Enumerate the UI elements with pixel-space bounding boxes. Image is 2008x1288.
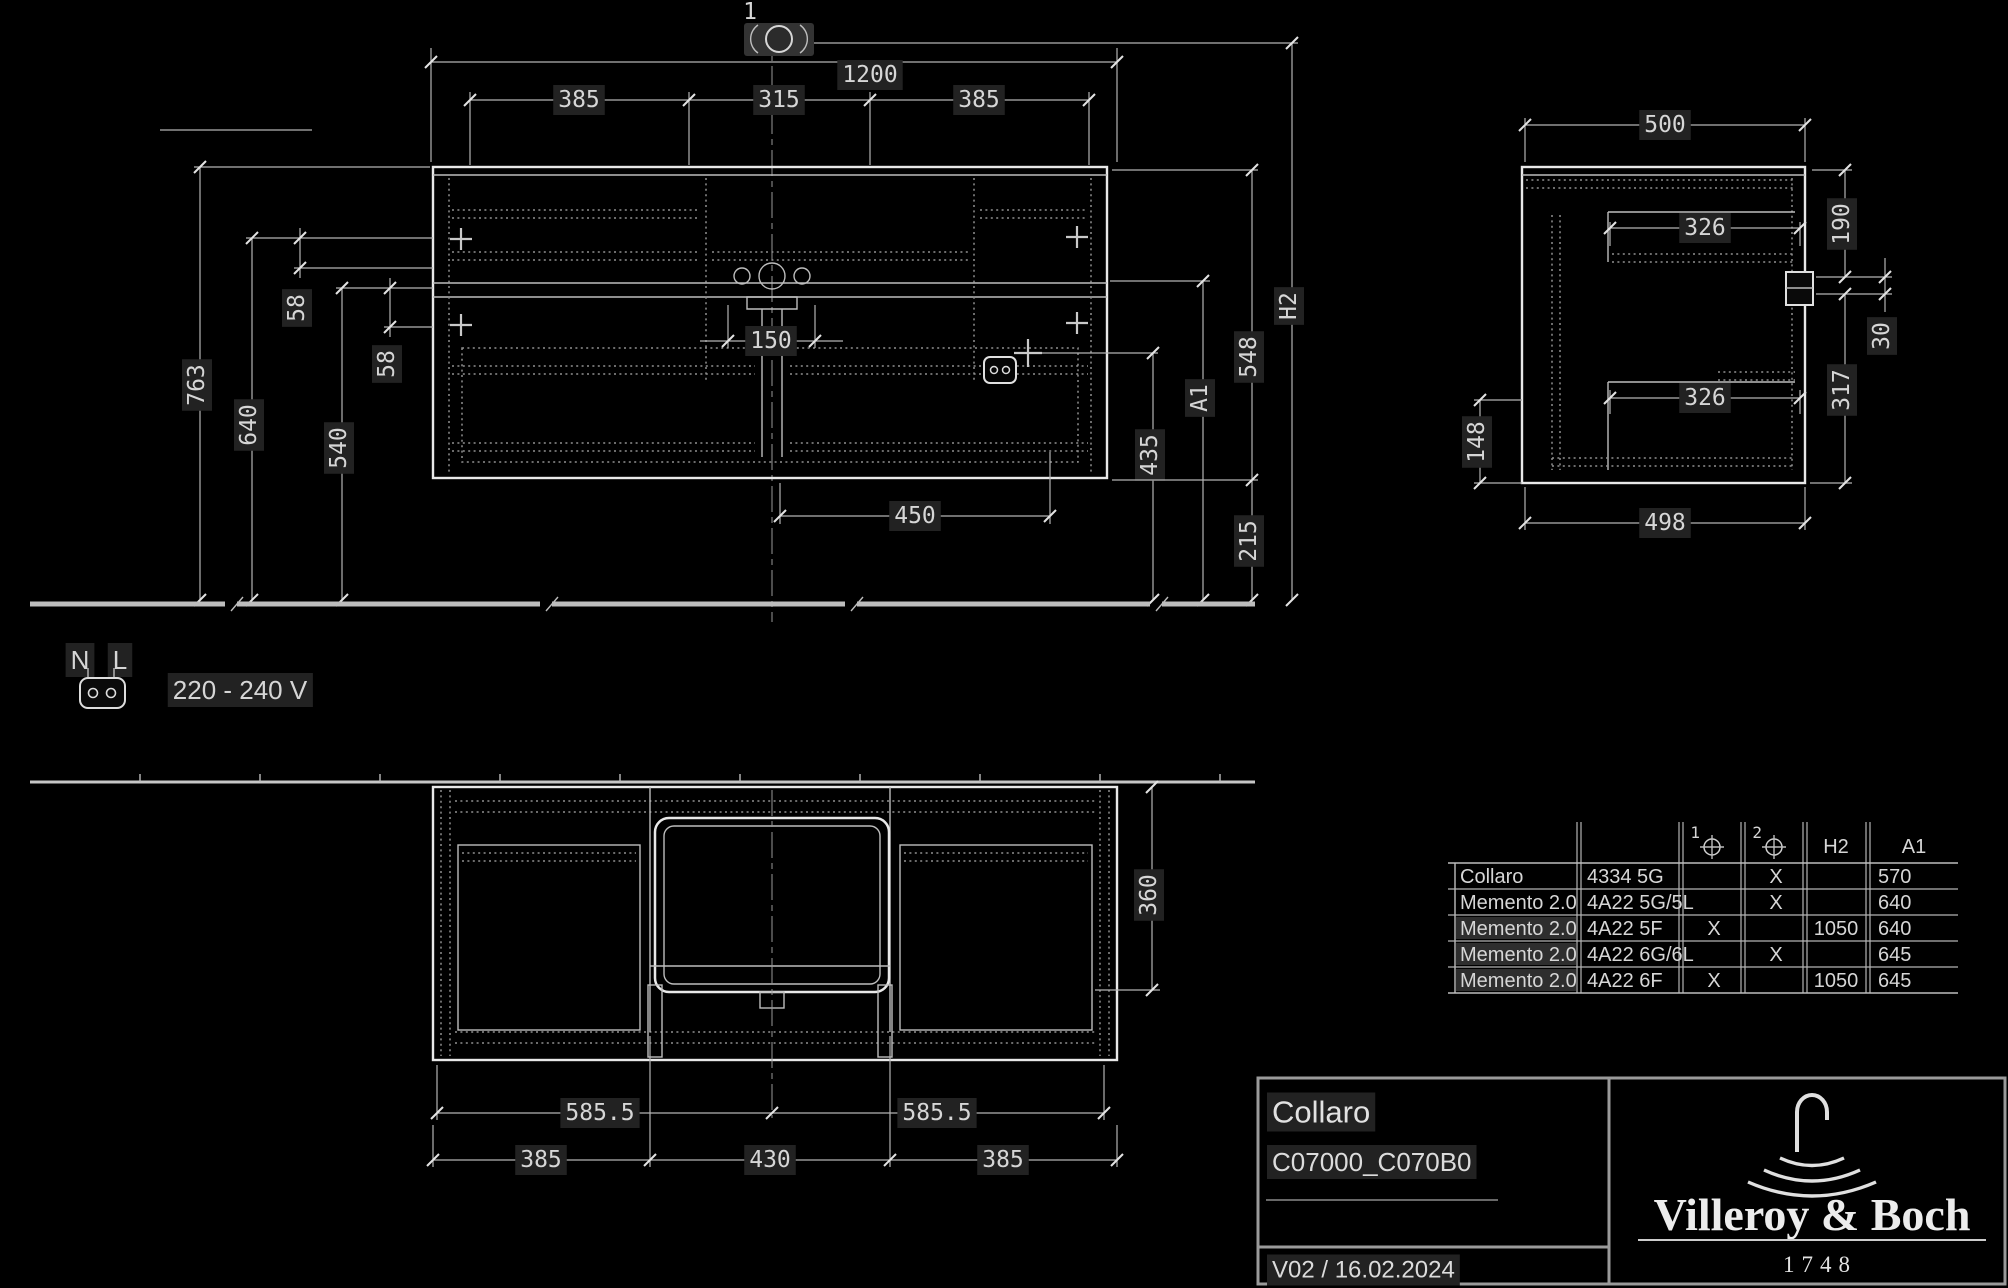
position-2-icon (1762, 835, 1786, 859)
row1-code: 4A22 5G/5L (1587, 892, 1694, 914)
brand-logo-icon (1748, 1095, 1876, 1196)
label-l: L (113, 645, 127, 675)
row1-a1: 640 (1878, 892, 1911, 914)
dim-right-lower: 317 (1829, 369, 1855, 411)
dim-left-bottom: 148 (1464, 421, 1490, 463)
dim-siphon-width: 150 (750, 328, 792, 354)
drawing-sheet: 1 (0, 0, 2008, 1288)
row3-a1: 645 (1878, 944, 1911, 966)
dim-bottom-right: 385 (982, 1147, 1024, 1173)
table-row: Memento 2.0 4A22 6G/6L X 645 (1456, 943, 1911, 966)
dim-cabinet-height: 548 (1236, 336, 1262, 378)
dim-h2: H2 (1276, 292, 1302, 320)
row4-code: 4A22 6F (1587, 970, 1663, 992)
version-date: V02 / 16.02.2024 (1272, 1257, 1455, 1284)
dim-bottom-left: 385 (520, 1147, 562, 1173)
dim-under-height: 215 (1236, 520, 1262, 562)
side-view-dimensions: 500 498 326 326 190 30 317 148 (1462, 110, 1897, 538)
row2-code: 4A22 5F (1587, 918, 1663, 940)
row2-a1: 640 (1878, 918, 1911, 940)
row2-h2: 1050 (1814, 918, 1859, 940)
row0-pos2: X (1769, 866, 1782, 888)
table-header-a1: A1 (1902, 836, 1926, 858)
table-header-h2: H2 (1823, 836, 1849, 858)
dim-gap-lower: 58 (374, 350, 400, 378)
technical-drawing: 1 (0, 0, 2008, 1288)
row0-code: 4334 5G (1587, 866, 1664, 888)
product-name: Collaro (1272, 1095, 1370, 1130)
row3-name: Memento 2.0 (1460, 944, 1577, 966)
plan-view (30, 774, 1255, 1118)
dim-width-right: 385 (958, 87, 1000, 113)
dim-a1: A1 (1187, 384, 1213, 412)
product-codes: C07000_C070B0 (1272, 1147, 1472, 1177)
position-1-icon (1700, 835, 1724, 859)
dim-width-center: 315 (758, 87, 800, 113)
dim-right-upper: 190 (1829, 203, 1855, 245)
dim-width-left: 385 (558, 87, 600, 113)
row1-pos2: X (1769, 892, 1782, 914)
label-n: N (71, 645, 90, 675)
table-row: Memento 2.0 4A22 6F X 1050 645 (1456, 969, 1911, 992)
spec-table: 1 2 H2 A1 Collaro 4334 5G X 570 Memento … (1448, 822, 1958, 993)
dim-height-total: 763 (184, 364, 210, 406)
row1-name: Memento 2.0 (1460, 892, 1577, 914)
row0-a1: 570 (1878, 866, 1911, 888)
side-view (1522, 167, 1813, 483)
table-header-pos2: 2 (1752, 823, 1762, 842)
dim-bottom-clearance: 450 (894, 503, 936, 529)
table-row: Memento 2.0 4A22 5F X 1050 640 (1456, 917, 1911, 940)
faucet-hole-icon (744, 23, 814, 56)
dim-gap-upper: 58 (284, 294, 310, 322)
dim-half-left: 585.5 (565, 1100, 634, 1126)
dim-height-mid: 540 (326, 427, 352, 469)
row2-pos1: X (1707, 918, 1720, 940)
row0-name: Collaro (1460, 866, 1523, 888)
dim-width-total: 1200 (842, 62, 897, 88)
dim-inner-lower: 326 (1684, 385, 1726, 411)
electrical-note: N L 220 - 240 V (66, 643, 313, 708)
dim-depth-bottom: 498 (1644, 510, 1686, 536)
dim-depth-top: 500 (1644, 112, 1686, 138)
row3-code: 4A22 6G/6L (1587, 944, 1694, 966)
row2-name: Memento 2.0 (1460, 918, 1577, 940)
voltage-label: 220 - 240 V (173, 675, 308, 705)
callout-1-label: 1 (743, 0, 757, 25)
power-socket-icon (80, 678, 125, 708)
row3-pos2: X (1769, 944, 1782, 966)
row4-a1: 645 (1878, 970, 1911, 992)
floor-line (30, 597, 1255, 611)
table-row: Collaro 4334 5G X 570 (1460, 866, 1911, 888)
brand-name: Villeroy & Boch (1654, 1189, 1971, 1240)
row4-name: Memento 2.0 (1460, 970, 1577, 992)
table-header-pos1: 1 (1690, 823, 1700, 842)
brand-year: 1748 (1783, 1252, 1857, 1277)
row4-h2: 1050 (1814, 970, 1859, 992)
wall-bracket (1786, 272, 1813, 305)
row4-pos1: X (1707, 970, 1720, 992)
title-block: Collaro C07000_C070B0 V02 / 16.02.2024 V… (1258, 1078, 2005, 1286)
dim-inner-upper: 326 (1684, 215, 1726, 241)
dim-plan-depth: 360 (1136, 874, 1162, 916)
dim-right-notch: 30 (1869, 322, 1895, 350)
dim-half-right: 585.5 (902, 1100, 971, 1126)
dim-height-drawer-top: 640 (236, 404, 262, 446)
front-view-dimensions: 1200 385 315 385 763 640 540 58 58 (160, 37, 1304, 606)
internal-socket-icon (984, 357, 1016, 383)
plan-view-dimensions: 360 585.5 585.5 385 430 385 (427, 781, 1164, 1175)
table-row: Memento 2.0 4A22 5G/5L X 640 (1460, 892, 1911, 914)
dim-bottom-center: 430 (749, 1147, 791, 1173)
dim-socket-height: 435 (1137, 434, 1163, 476)
